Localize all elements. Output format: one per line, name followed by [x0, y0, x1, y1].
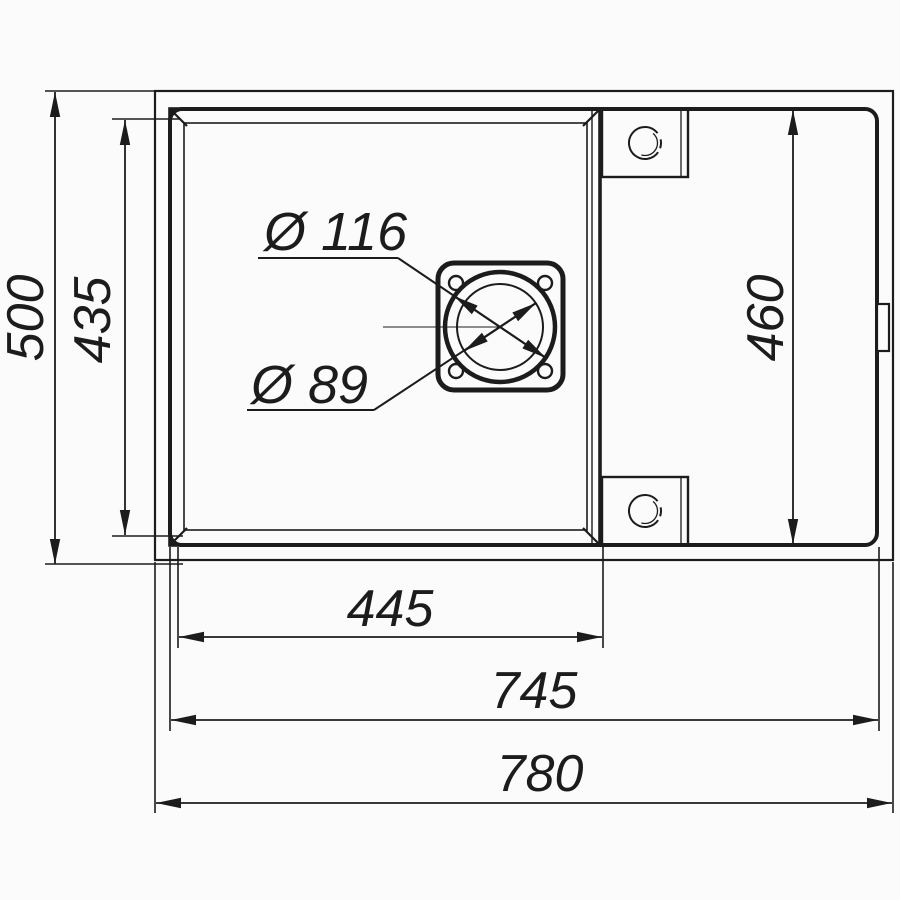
faucet-tab-bottom-outline — [602, 477, 688, 545]
drain-assembly — [383, 263, 563, 390]
chamfer-top-right — [583, 110, 599, 126]
faucet-tab-top — [602, 109, 688, 177]
drain-screw-hole-top-right — [538, 276, 552, 290]
overflow-notch — [877, 304, 889, 351]
faucet-hole-bottom-inner-arc — [627, 493, 662, 528]
dim-label-435: 435 — [64, 276, 122, 364]
faucet-tab-bottom — [602, 477, 688, 545]
chamfer-bottom-right — [583, 528, 599, 544]
drain-screw-hole-top-left — [449, 276, 463, 290]
drain-screw-hole-bottom-left — [449, 364, 463, 378]
dim-label-445: 445 — [347, 580, 435, 638]
d89-label: Ø 89 — [249, 355, 368, 415]
d116-label: Ø 116 — [262, 202, 408, 262]
drain-screw-hole-bottom-right — [538, 364, 552, 378]
technical-drawing-canvas: Ø 116 Ø 89 500 435 460 445 745 780 — [0, 0, 900, 900]
faucet-hole-top-icon — [623, 121, 668, 166]
dim-label-745: 745 — [491, 662, 579, 720]
faucet-hole-bottom-icon — [623, 489, 668, 534]
faucet-hole-top-inner-arc — [627, 125, 662, 160]
dimension-lines — [55, 92, 892, 803]
callout-d89: Ø 89 — [247, 303, 536, 415]
dim-label-460: 460 — [737, 275, 795, 362]
callout-d116: Ø 116 — [258, 202, 546, 358]
dim-label-780: 780 — [497, 745, 584, 803]
extension-lines — [45, 91, 893, 813]
dim-label-500: 500 — [0, 275, 55, 362]
sink-drawing-svg: Ø 116 Ø 89 500 435 460 445 745 780 — [0, 0, 900, 900]
chamfer-top-left — [171, 110, 187, 126]
faucet-tab-top-outline — [602, 109, 688, 177]
